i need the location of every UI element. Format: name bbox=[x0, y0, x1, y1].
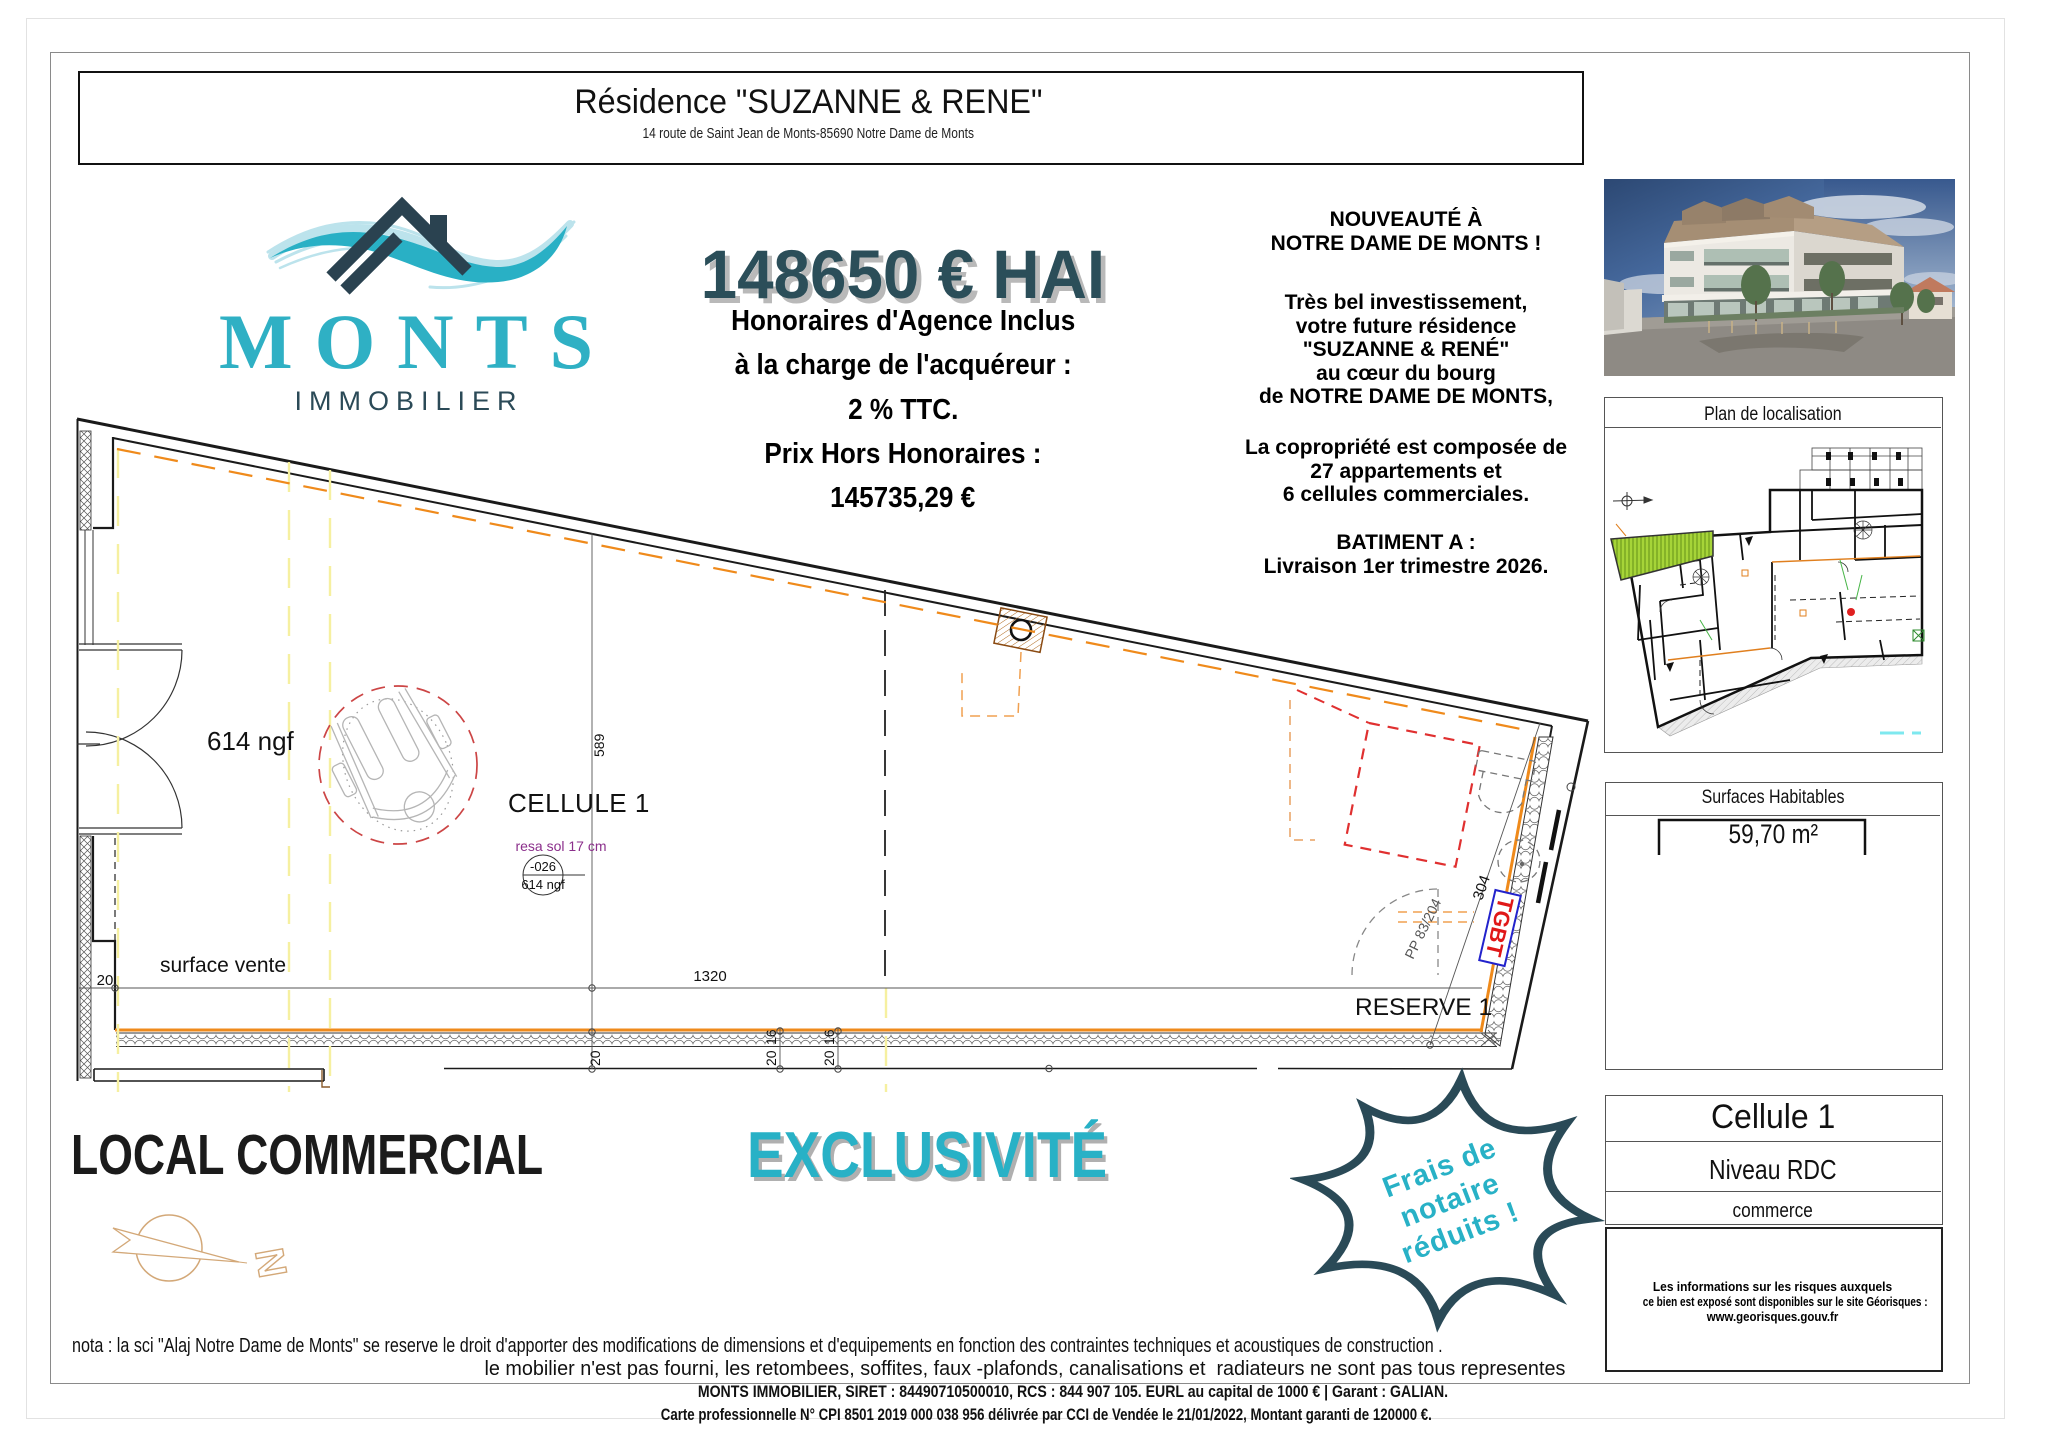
svg-text:resa sol 17 cm: resa sol 17 cm bbox=[515, 838, 606, 854]
svg-text:1320: 1320 bbox=[693, 968, 726, 985]
svg-text:589: 589 bbox=[591, 733, 607, 757]
svg-text:614 ngf: 614 ngf bbox=[521, 877, 565, 892]
svg-text:CELLULE 1: CELLULE 1 bbox=[508, 788, 650, 818]
svg-text:20: 20 bbox=[97, 972, 114, 989]
svg-text:20: 20 bbox=[763, 1050, 779, 1066]
svg-text:20: 20 bbox=[587, 1050, 603, 1066]
svg-text:16: 16 bbox=[821, 1029, 837, 1045]
svg-text:16: 16 bbox=[763, 1029, 779, 1045]
svg-text:304: 304 bbox=[1470, 873, 1494, 902]
svg-text:RESERVE 1: RESERVE 1 bbox=[1355, 994, 1492, 1021]
svg-text:-026: -026 bbox=[530, 859, 556, 874]
svg-text:N: N bbox=[246, 1245, 294, 1281]
svg-text:614 ngf: 614 ngf bbox=[207, 726, 295, 756]
svg-text:20: 20 bbox=[821, 1050, 837, 1066]
svg-text:surface vente: surface vente bbox=[160, 954, 286, 977]
